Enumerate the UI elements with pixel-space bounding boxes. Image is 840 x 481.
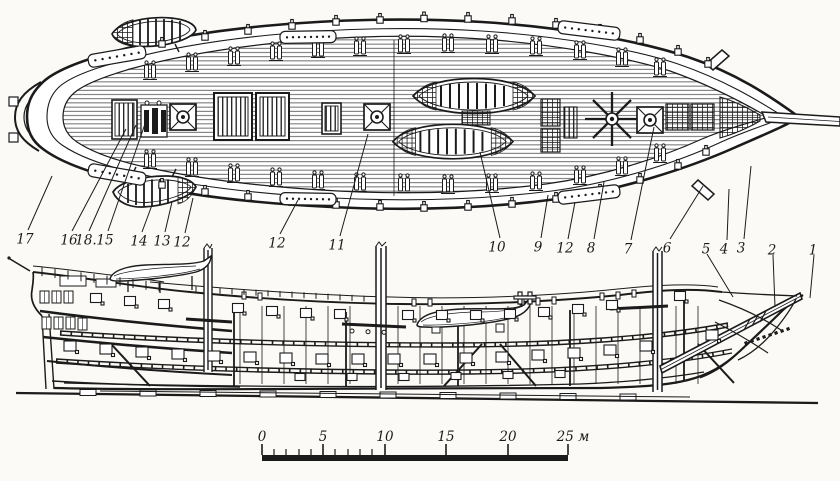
gunport xyxy=(100,344,112,354)
fore-mast-partner xyxy=(637,107,663,133)
scale-tick-label: 5 xyxy=(319,429,328,445)
gunport xyxy=(471,311,482,320)
gunport xyxy=(532,350,544,360)
gunport xyxy=(208,351,220,361)
gunport xyxy=(388,354,400,364)
callout-label: 5 xyxy=(702,242,711,258)
gunport xyxy=(347,374,357,381)
keel-block xyxy=(320,392,336,398)
gunport xyxy=(159,300,170,309)
stern-windows xyxy=(40,291,87,330)
gunport xyxy=(460,353,472,363)
keel-block xyxy=(440,393,456,399)
rail-bollard xyxy=(705,58,711,68)
pump-bitts xyxy=(141,101,167,137)
ships-boat-plan-lower xyxy=(393,124,513,158)
callout-label: 7 xyxy=(624,242,633,258)
callout-label: 9 xyxy=(534,240,543,256)
scale-tick-label: 0 xyxy=(258,429,267,445)
scale-tick-label: 15 xyxy=(437,429,454,445)
scale-bar-rule xyxy=(262,455,568,461)
head-rail-upper xyxy=(722,292,797,296)
gunport xyxy=(604,345,616,355)
side-elevation-view xyxy=(7,242,818,403)
gunport xyxy=(505,310,516,319)
cathead-starboard xyxy=(692,180,714,200)
ship-drawing: 171618.1514131212111091287654321 0510152… xyxy=(0,0,840,481)
gunport xyxy=(335,310,346,319)
keel-block xyxy=(620,394,636,400)
callout-label: 12 xyxy=(268,236,285,252)
gunport xyxy=(267,307,278,316)
gunport xyxy=(295,374,305,381)
keel-block xyxy=(80,390,96,396)
gunport xyxy=(91,294,102,303)
capstan xyxy=(585,92,639,146)
gunport xyxy=(424,354,436,364)
gunport xyxy=(233,304,244,313)
callout-leader-line xyxy=(810,255,814,298)
rail-bollard xyxy=(333,16,339,26)
gunport xyxy=(451,373,461,380)
main-mast xyxy=(376,242,386,390)
pin-rail xyxy=(280,31,336,44)
head-rail-dentils xyxy=(744,327,790,345)
gunport xyxy=(352,354,364,364)
callout-label: 14 xyxy=(130,234,147,250)
scale-tick-label: 20 xyxy=(498,429,517,445)
keel-block xyxy=(260,391,276,397)
gunport xyxy=(555,371,565,378)
gunport xyxy=(64,341,76,351)
keel-block xyxy=(200,391,216,397)
gunport xyxy=(568,348,580,358)
callout-leader-line xyxy=(744,166,751,239)
gunport xyxy=(607,301,618,310)
callout-label: 2 xyxy=(767,243,777,259)
mizzen-mast-partner xyxy=(170,104,196,130)
gunport xyxy=(172,349,184,359)
callout-leader-line xyxy=(165,202,172,232)
callout-leader-line xyxy=(568,202,575,239)
rail-bollard xyxy=(637,34,643,44)
rail-bollard xyxy=(465,13,471,23)
callout-label: 3 xyxy=(737,241,746,257)
rail-bollard xyxy=(377,14,383,24)
gunport xyxy=(706,330,718,340)
rail-bollard xyxy=(289,20,295,30)
gunport xyxy=(640,341,652,351)
gunport xyxy=(244,352,256,362)
gunport xyxy=(437,311,448,320)
callout-label: 6 xyxy=(663,241,672,257)
gunport xyxy=(675,292,686,301)
callout-label: 11 xyxy=(328,238,345,254)
pin-rail xyxy=(280,193,336,206)
callout-label: 4 xyxy=(719,242,729,258)
gunport xyxy=(399,374,409,381)
callout-label: 17 xyxy=(16,232,34,248)
ships-boat-plan-upper xyxy=(413,79,535,114)
gunport xyxy=(403,311,414,320)
keel-block xyxy=(500,393,516,399)
rail-bollard xyxy=(421,12,427,22)
callout-label: 15 xyxy=(96,233,113,249)
callout-label: 1 xyxy=(809,243,818,259)
rail-bollard xyxy=(245,25,251,35)
rail-bollard xyxy=(675,46,681,56)
gunport xyxy=(301,309,312,318)
keel-block xyxy=(380,392,396,398)
rail-bollard xyxy=(509,15,515,25)
gunport xyxy=(539,308,550,317)
callout-leader-line xyxy=(670,186,703,239)
callout-label: 10 xyxy=(488,240,506,256)
callout-leader-line xyxy=(28,176,52,230)
callout-leader-line xyxy=(773,255,775,307)
callout-label: 8 xyxy=(587,241,596,257)
main-mast-partner xyxy=(364,104,390,130)
scale-tick-label: 25 м xyxy=(556,429,590,445)
callout-label: 12 xyxy=(556,241,573,257)
deck-plan-view xyxy=(9,12,840,211)
gunport xyxy=(316,354,328,364)
callout-label: 12 xyxy=(173,235,190,251)
keel-block xyxy=(140,390,156,396)
gunport xyxy=(136,347,148,357)
figure-canvas: 171618.1514131212111091287654321 0510152… xyxy=(0,0,840,481)
keel-line xyxy=(54,295,803,389)
scale-bar: 0510152025 м xyxy=(258,429,590,461)
callout-leader-line xyxy=(142,205,152,232)
callout-leader-line xyxy=(185,198,193,233)
callout-label: 18. xyxy=(75,233,96,249)
callout-label: 13 xyxy=(153,234,170,250)
callout-leader-line xyxy=(727,189,729,240)
gunport xyxy=(496,352,508,362)
scale-tick-label: 10 xyxy=(376,429,394,445)
gunport xyxy=(573,305,584,314)
gunport xyxy=(503,372,513,379)
gunport xyxy=(125,297,136,306)
keel-block xyxy=(560,394,576,400)
gunport xyxy=(280,353,292,363)
